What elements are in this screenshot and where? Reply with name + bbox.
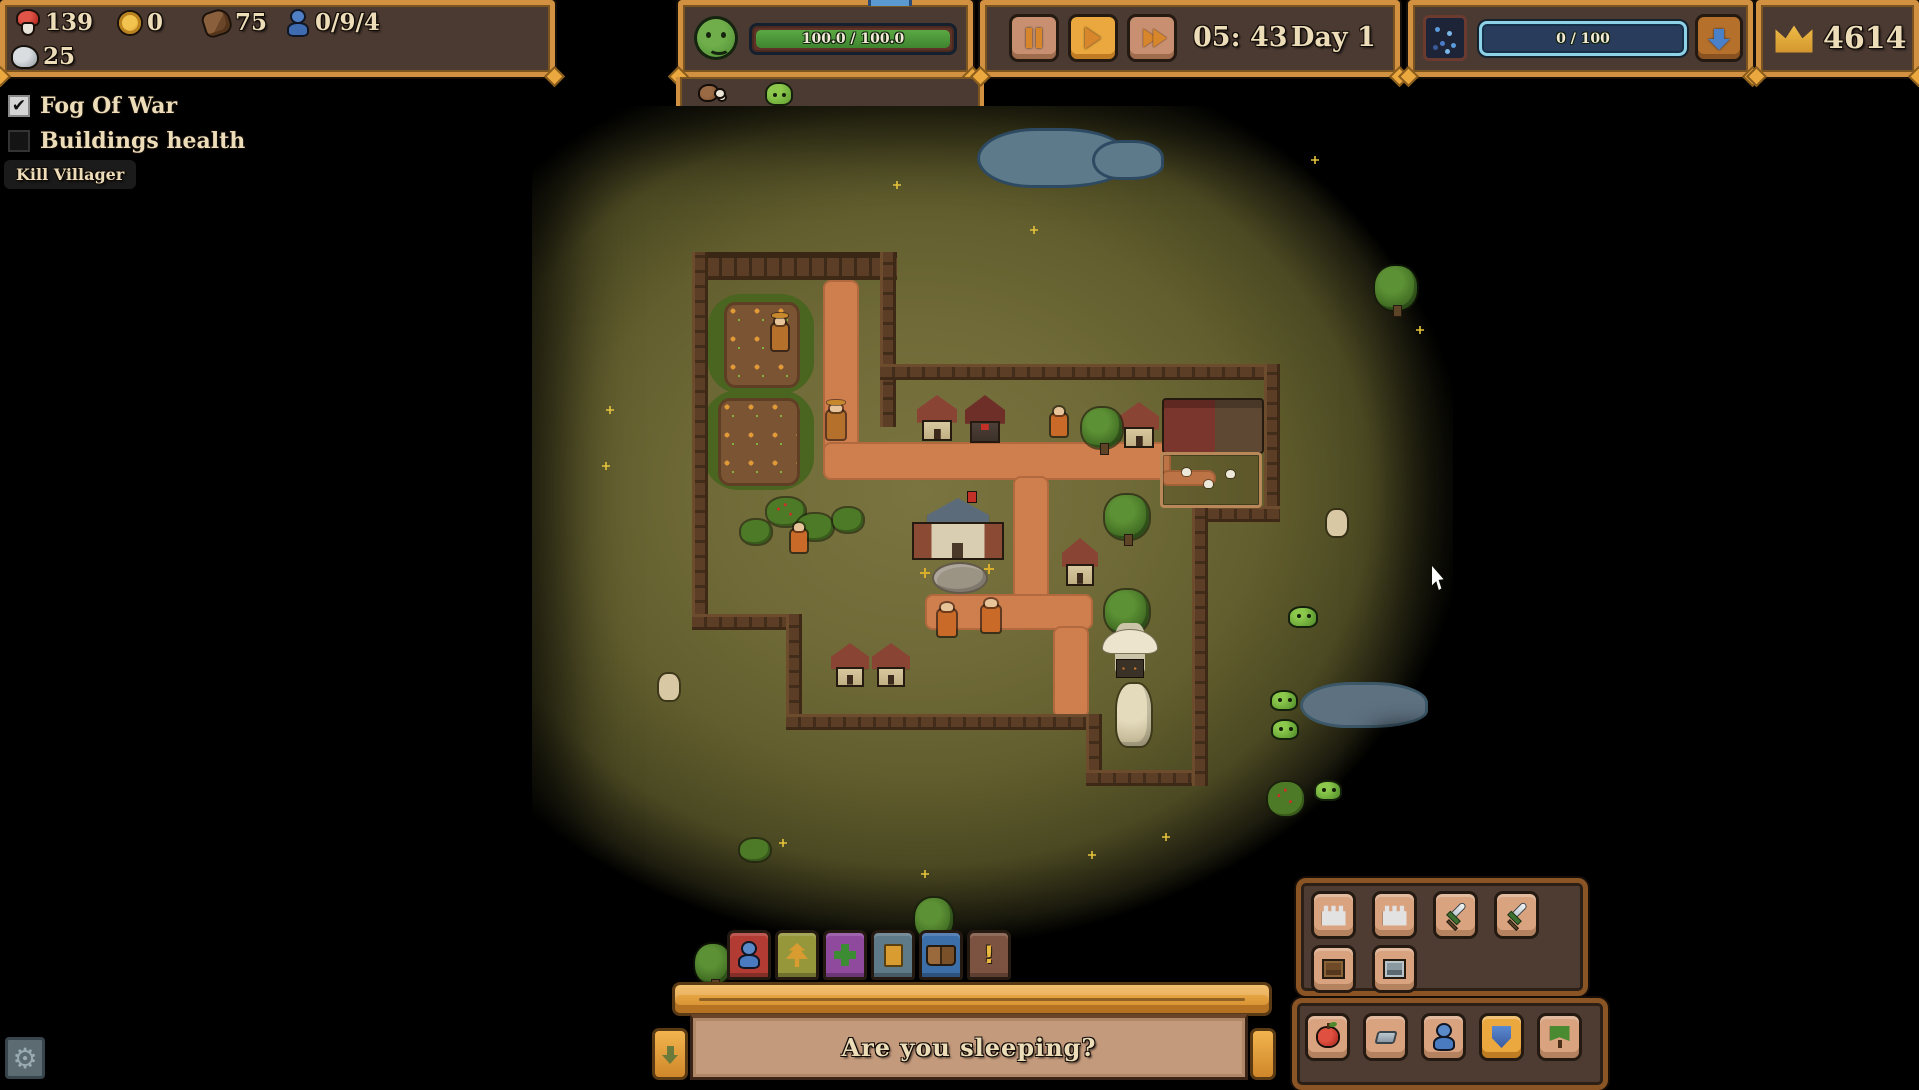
wall-h — [880, 364, 1280, 380]
chicken — [1182, 468, 1191, 476]
house — [917, 395, 957, 441]
wall-h — [786, 714, 1102, 730]
tab-alerts[interactable]: ! — [967, 930, 1011, 980]
crown-panel: 4614 — [1756, 0, 1919, 77]
build-crate-wood[interactable] — [1311, 945, 1356, 993]
happiness-icon — [697, 19, 735, 57]
sparkle — [606, 406, 614, 414]
mana-collect-button[interactable] — [1695, 14, 1743, 62]
sparkle — [602, 462, 610, 470]
farmer — [772, 324, 788, 350]
villager-count: 0/9/4 — [315, 11, 380, 35]
crown-score: 4614 — [1823, 21, 1907, 56]
exclaim-icon: ! — [984, 941, 995, 969]
tree — [1082, 408, 1122, 448]
sparkle — [1088, 851, 1096, 859]
villager — [982, 606, 1000, 632]
sparkle — [893, 181, 901, 189]
slime — [1288, 606, 1318, 628]
path — [1013, 476, 1049, 600]
banner-tree-icon — [1550, 1026, 1570, 1048]
flag — [968, 492, 976, 502]
gold-count: 0 — [147, 11, 163, 35]
food-icon — [17, 11, 39, 35]
chicken — [1204, 480, 1213, 488]
wood-icon — [202, 9, 232, 37]
fast-forward-button[interactable] — [1127, 14, 1177, 62]
path — [1053, 626, 1089, 718]
sparkle — [1030, 226, 1038, 234]
clock-value: 05: 43 — [1193, 22, 1288, 53]
happiness-bar: 100.0 / 100.0 — [749, 23, 957, 55]
kill-villager-button[interactable]: Kill Villager — [4, 160, 136, 189]
villager — [1051, 414, 1067, 436]
person-icon — [1433, 1025, 1455, 1049]
tree — [695, 944, 731, 983]
book-icon — [926, 945, 956, 966]
villager — [791, 530, 807, 552]
wall-h — [1086, 770, 1208, 786]
meat-icon — [700, 84, 724, 104]
bush-berry — [1268, 782, 1304, 816]
banner-message: Are you sleeping? — [841, 1033, 1096, 1062]
buildings-health-checkbox[interactable] — [8, 130, 30, 152]
resource-filter-panel — [1292, 998, 1608, 1090]
bush — [833, 508, 863, 532]
villager — [938, 610, 956, 636]
down-arrow-icon — [1714, 29, 1724, 39]
flower — [920, 568, 930, 578]
cross-icon — [834, 944, 856, 966]
build-sword-2[interactable] — [1494, 891, 1539, 939]
pond-gray — [1300, 682, 1428, 728]
stone-icon — [13, 47, 37, 67]
tower-icon — [1383, 905, 1407, 926]
crown-icon — [1773, 23, 1815, 55]
goat — [1327, 510, 1347, 536]
build-sword-1[interactable] — [1433, 891, 1478, 939]
wall-v — [880, 252, 896, 427]
stone-count: 25 — [43, 45, 75, 69]
mana-panel: 0 / 100 — [1408, 0, 1753, 77]
settings-button[interactable]: ⚙ — [5, 1037, 45, 1079]
bush — [740, 839, 770, 861]
build-tower-1[interactable] — [1311, 891, 1356, 939]
sparkle — [1416, 326, 1424, 334]
build-panel — [1296, 878, 1588, 996]
play-icon — [1085, 27, 1101, 49]
house — [831, 643, 869, 687]
sparkle — [779, 839, 787, 847]
sword-icon — [1443, 902, 1469, 928]
apple-icon — [1318, 1028, 1338, 1046]
crate-wood-icon — [1322, 959, 1345, 979]
farm-soil — [718, 398, 800, 486]
wall-v — [1192, 506, 1208, 786]
person-icon — [738, 943, 760, 967]
resource-villager[interactable] — [1421, 1013, 1466, 1061]
resource-banner[interactable] — [1537, 1013, 1582, 1061]
gear-icon: ⚙ — [12, 1042, 37, 1075]
wood-count: 75 — [235, 11, 267, 35]
fog-of-war-label[interactable]: Fog Of War — [40, 93, 177, 119]
pond — [1092, 140, 1164, 180]
fast-forward-icon — [1142, 27, 1162, 49]
tree — [1375, 266, 1417, 310]
mana-icon — [1423, 15, 1467, 61]
day-value: Day 1 — [1291, 22, 1376, 53]
food-count: 139 — [45, 11, 93, 35]
tab-villagers[interactable] — [727, 930, 771, 980]
slime — [1270, 690, 1298, 711]
rock — [1117, 684, 1151, 746]
sparkle — [1311, 156, 1319, 164]
build-crate-metal[interactable] — [1372, 945, 1417, 993]
villager-icon — [287, 11, 309, 35]
sparkle — [921, 870, 929, 878]
happiness-value: 100.0 / 100.0 — [802, 31, 905, 47]
time-panel: 05: 43 Day 1 — [980, 0, 1400, 77]
tab-cards[interactable] — [871, 930, 915, 980]
notification-banner: Are you sleeping? — [690, 1014, 1248, 1080]
patio — [932, 562, 988, 594]
resource-shield[interactable] — [1479, 1013, 1524, 1061]
bush — [741, 520, 771, 544]
tree-icon — [786, 943, 808, 967]
barracks — [965, 395, 1005, 443]
build-tower-2[interactable] — [1372, 891, 1417, 939]
cards-icon — [884, 944, 903, 967]
banner-collapse-tab[interactable] — [652, 1028, 688, 1080]
sparkle — [1162, 833, 1170, 841]
crate-metal-icon — [1383, 959, 1406, 979]
toolbar-tabs: ! — [727, 930, 1011, 980]
house — [872, 643, 910, 687]
tree — [1105, 495, 1149, 539]
wall-top — [692, 252, 897, 280]
tab-health[interactable] — [823, 930, 867, 980]
play-button[interactable] — [1068, 14, 1118, 62]
sword-icon — [1504, 902, 1530, 928]
wall-v — [1264, 364, 1280, 522]
wall-v — [786, 614, 802, 730]
ingot-icon — [1374, 1031, 1397, 1044]
banner-right-tab[interactable] — [1250, 1028, 1276, 1080]
farmer — [827, 411, 845, 439]
collapse-arrow-icon — [667, 1046, 674, 1055]
slime-icon — [767, 84, 791, 104]
house — [1062, 538, 1098, 586]
tower-icon — [1322, 905, 1346, 926]
goat — [659, 674, 679, 700]
wall-v — [692, 252, 708, 630]
buildings-health-label[interactable]: Buildings health — [40, 128, 245, 154]
farm-soil — [724, 302, 800, 388]
house — [1119, 402, 1159, 448]
mana-value: 0 / 100 — [1556, 31, 1610, 47]
resource-panel: 139 0 75 0/9/4 25 — [0, 0, 555, 77]
pause-icon — [1026, 28, 1042, 48]
townhall — [912, 498, 1004, 560]
tab-nature[interactable] — [775, 930, 819, 980]
chicken — [1226, 470, 1235, 478]
tab-journal[interactable] — [919, 930, 963, 980]
pause-button[interactable] — [1009, 14, 1059, 62]
slime — [1271, 719, 1299, 740]
happiness-panel: 100.0 / 100.0 — [678, 0, 973, 77]
mana-bar: 0 / 100 — [1479, 21, 1687, 56]
shield-icon — [1492, 1026, 1511, 1048]
game-map[interactable] — [532, 106, 1453, 983]
coin-icon — [119, 12, 141, 34]
resource-ingot[interactable] — [1363, 1013, 1408, 1061]
stable — [1162, 398, 1264, 454]
statue — [1115, 623, 1145, 673]
top-blue-marker — [868, 0, 912, 6]
toolbar-plank — [672, 982, 1272, 1016]
resource-apple[interactable] — [1305, 1013, 1350, 1061]
slime — [1314, 780, 1342, 801]
fog-of-war-checkbox[interactable]: ✔ — [8, 95, 30, 117]
